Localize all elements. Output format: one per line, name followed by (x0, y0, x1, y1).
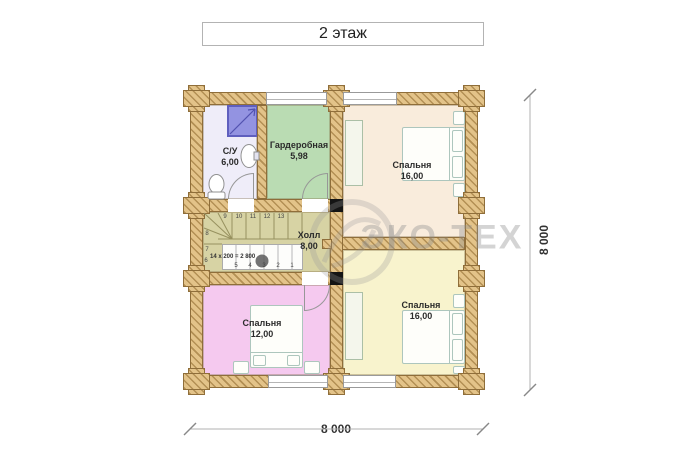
pillow (452, 339, 463, 361)
pillow (452, 130, 463, 152)
room-name: Холл (298, 230, 321, 241)
nightstand (233, 361, 249, 374)
log-nub (183, 373, 210, 390)
floor-plan-page: 2 этаж (0, 0, 700, 464)
label-bathroom: С/У 6,00 (221, 146, 239, 168)
stair-number: 5 (234, 263, 237, 269)
room-name: Спальня (243, 318, 282, 329)
bed-divider (251, 352, 302, 353)
room-area: 12,00 (243, 329, 282, 340)
dimension-ticks-right (524, 89, 536, 396)
wall-v-bath-wardrobe (257, 105, 267, 199)
door-opening-wardrobe (302, 199, 328, 212)
bed-divider (449, 311, 450, 363)
flue-block-top (330, 199, 343, 212)
log-nub (322, 239, 332, 249)
log-nub (458, 373, 485, 390)
room-name: С/У (221, 146, 239, 157)
room-area: 16,00 (393, 171, 432, 182)
flue-block-bottom (330, 272, 343, 285)
pillow (287, 355, 300, 366)
window-top-1 (266, 92, 327, 105)
room-area: 16,00 (402, 311, 441, 322)
door-opening-bedroom-left (302, 272, 328, 285)
bed-divider (449, 128, 450, 180)
stair-number: 6 (204, 258, 207, 264)
room-area: 5,98 (270, 151, 328, 162)
closet-symbol (345, 292, 363, 360)
room-area: 8,00 (298, 241, 321, 252)
wall-left (190, 92, 203, 388)
room-name: Спальня (393, 160, 432, 171)
log-nub (458, 90, 485, 107)
room-name: Гардеробная (270, 140, 328, 151)
label-bedroom-top: Спальня 16,00 (393, 160, 432, 182)
stair-number: 10 (236, 214, 243, 220)
stair-number: 13 (278, 214, 285, 220)
nightstand (304, 361, 320, 374)
room-area: 6,00 (221, 157, 239, 168)
stair-number: 7 (205, 247, 208, 253)
window-bottom-1 (268, 375, 328, 388)
log-nub (183, 90, 210, 107)
stair-number: 3 (262, 263, 265, 269)
log-nub (458, 197, 485, 214)
stair-number: 9 (223, 214, 226, 220)
log-nub (183, 270, 210, 287)
log-nub (183, 197, 210, 214)
window-top-2 (343, 92, 397, 105)
nightstand (453, 111, 465, 125)
label-wardrobe: Гардеробная 5,98 (270, 140, 328, 162)
label-bedroom-left: Спальня 12,00 (243, 318, 282, 340)
stair-number: 2 (276, 263, 279, 269)
closet-symbol (345, 120, 363, 186)
stair-number: 12 (264, 214, 271, 220)
log-nub (458, 270, 485, 287)
plan-title: 2 этаж (319, 25, 367, 43)
stair-number: 4 (248, 263, 251, 269)
plan-title-box: 2 этаж (202, 22, 484, 46)
stair-number: 8 (205, 231, 208, 237)
nightstand (453, 294, 465, 308)
door-opening-bathroom (228, 199, 254, 212)
room-name: Спальня (402, 300, 441, 311)
watermark-text: ЭКО-ТЕХ (361, 219, 524, 258)
stair-number: 1 (290, 263, 293, 269)
dimension-right: 8 000 (537, 225, 551, 255)
window-bottom-2 (343, 375, 396, 388)
stair-number: 11 (250, 214, 256, 220)
label-hall: Холл 8,00 (298, 230, 321, 252)
pillow (452, 156, 463, 178)
label-bedroom-bottom: Спальня 16,00 (402, 300, 441, 322)
dimension-bottom: 8 000 (316, 422, 356, 436)
pillow (253, 355, 266, 366)
shower-symbol (227, 105, 258, 137)
stair-annotation: 14 x 200 = 2 800 (210, 254, 255, 260)
pillow (452, 313, 463, 335)
